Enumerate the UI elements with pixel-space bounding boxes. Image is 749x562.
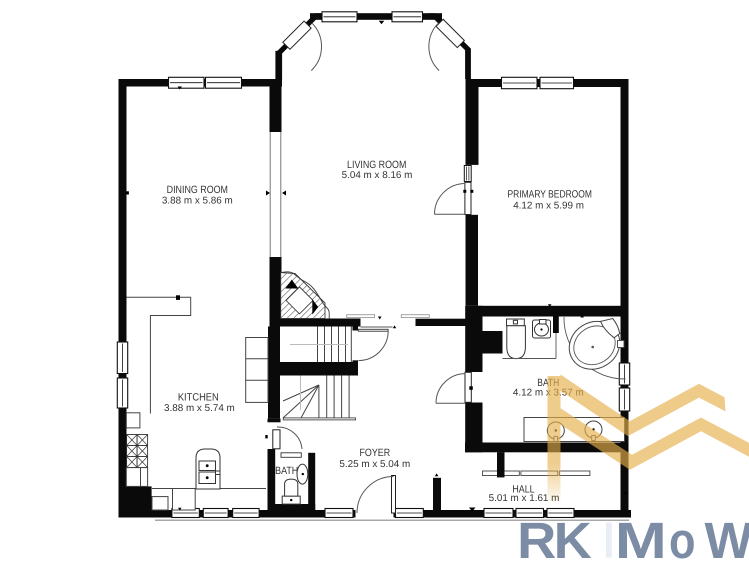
svg-text:o: o <box>669 512 695 562</box>
svg-text:5.04 m x 8.16 m: 5.04 m x 8.16 m <box>342 170 413 181</box>
svg-text:W: W <box>705 512 749 562</box>
svg-text:3.88 m x 5.86 m: 3.88 m x 5.86 m <box>162 195 233 206</box>
svg-text:R: R <box>517 512 556 562</box>
svg-text:BATH: BATH <box>275 465 298 477</box>
svg-text:5.25 m x 5.04 m: 5.25 m x 5.04 m <box>339 459 410 470</box>
svg-text:PRIMARY BEDROOM: PRIMARY BEDROOM <box>507 189 591 201</box>
svg-text:K: K <box>554 512 592 562</box>
svg-text:3.88 m x 5.74 m: 3.88 m x 5.74 m <box>164 403 235 414</box>
svg-text:KITCHEN: KITCHEN <box>178 391 219 403</box>
svg-text:LIVING ROOM: LIVING ROOM <box>347 159 406 171</box>
svg-text:FOYER: FOYER <box>359 447 390 459</box>
svg-text:DINING ROOM: DINING ROOM <box>167 184 228 196</box>
svg-text:4.12 m x 5.99 m: 4.12 m x 5.99 m <box>513 201 584 212</box>
svg-text:M: M <box>615 512 667 562</box>
